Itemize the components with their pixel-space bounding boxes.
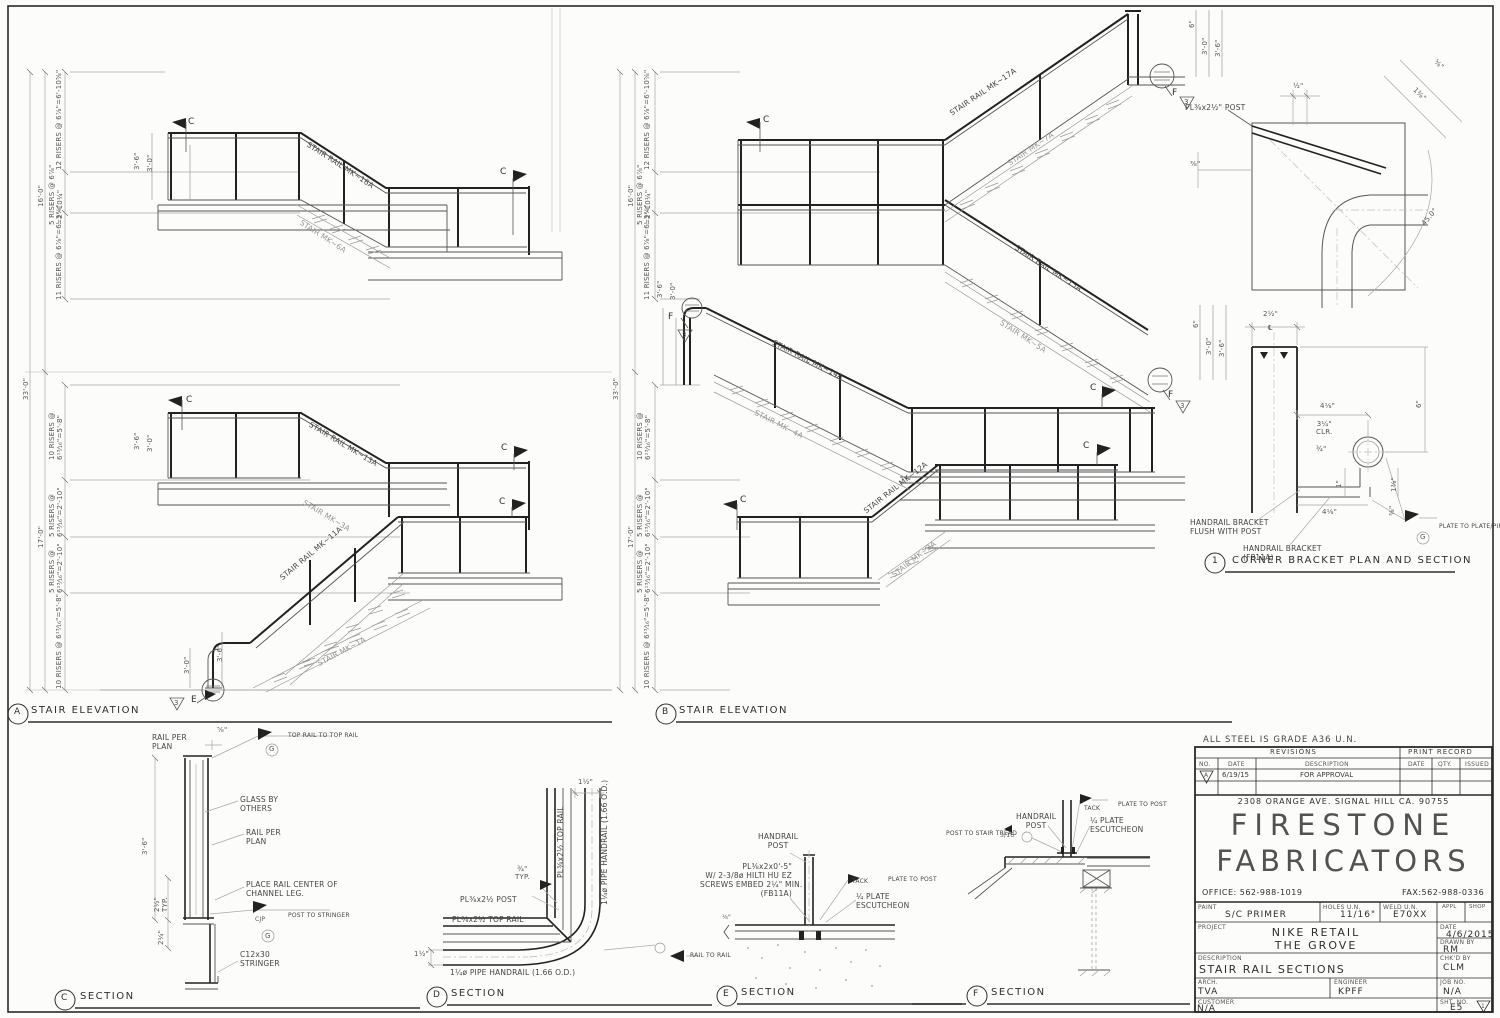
sec-e-post-label: HANDRAIL POST [758, 832, 798, 850]
elev-a-upper [152, 118, 562, 280]
elev-b-seg-l4: 10 RISERS @ 6¹³⁄₁₆"=5'-8" [643, 594, 651, 689]
sec-d-post-label: PL⅜x2½ POST [460, 895, 517, 904]
tb-address: 2308 ORANGE AVE. SIGNAL HILL CA. 90755 [1195, 797, 1492, 806]
sec-e-dim-18: ⅛" [722, 914, 731, 921]
tb-company-line1: FIRESTONE [1195, 808, 1492, 842]
elev-a-seg-u1: 12 RISERS @ 6⅞"=6'-10⅝" [55, 70, 63, 170]
detail1-dim-38b: ⅜" [1388, 506, 1396, 516]
sec-e-plate-to-post: PLATE TO POST [888, 876, 937, 883]
tb-shop-label: SHOP [1469, 904, 1485, 910]
sec-c-dim-36: 3'-6" [141, 837, 149, 855]
sec-c-weld-g2: G [265, 932, 271, 940]
sec-c-dim-214: 2¼" [157, 930, 165, 945]
tb-project-line1: NIKE RETAIL [1195, 926, 1437, 939]
steel-grade-note: ALL STEEL IS GRADE A36 U.N. [1203, 735, 1357, 745]
sec-e-plate-note: PL⅜x2x0'-5" W/ 2-3/8ø HILTI HU EZ SCREWS… [700, 862, 792, 898]
detail-corner-section [1245, 322, 1437, 545]
tb-arch-value: TVA [1198, 987, 1218, 997]
detail1-dim-6: 6" [1415, 400, 1423, 408]
elev-b-dim-30-mid: 3'-0" [1205, 337, 1213, 355]
elev-a-rail-height-lower: 3'-6" [133, 432, 141, 450]
elev-b-title: STAIR ELEVATION [679, 705, 788, 717]
sec-d-title: SECTION [451, 988, 506, 1000]
sec-c-weld-post: POST TO STRINGER [288, 912, 350, 919]
elev-a-end-rail-height: 3'-6" [216, 644, 224, 662]
sec-f-tack: TACK [1084, 805, 1100, 812]
tb-job-label: JOB NO. [1440, 979, 1466, 986]
tb-col-no: NO. [1199, 761, 1211, 768]
tb-paint-label: PAINT [1198, 904, 1217, 911]
tb-desc-value: STAIR RAIL SECTIONS [1199, 963, 1345, 976]
tb-chk-value: CLM [1443, 963, 1465, 973]
elev-a-flag-c3: C [186, 395, 192, 405]
elev-b-dim-30-top: 3'-0" [1201, 37, 1209, 55]
elev-b-flag-c2: C [1090, 383, 1096, 393]
elev-b-dim-upper: 16'-0" [627, 185, 635, 207]
elev-b-triangle-2: 3 [1180, 402, 1185, 410]
elev-b-dim-30-left: 3'-0" [669, 282, 677, 300]
sec-f-weld-316: 3/16 [1000, 832, 1014, 839]
tb-col-qty: QTY. [1438, 761, 1452, 768]
tb-rev-date: 6/19/15 [1222, 771, 1249, 779]
sec-e-rail-to-rail: RAIL TO RAIL [690, 952, 731, 959]
sec-c-title: SECTION [80, 991, 135, 1003]
sec-e-escutcheon: ¼ PLATE ESCUTCHEON [856, 892, 910, 910]
concrete-speckle [747, 944, 881, 989]
elev-b-flag-c3: C [1083, 441, 1089, 451]
elev-a-seg-l1: 10 RISERS @ 6¹³⁄₁₆"=5'-8" [48, 412, 65, 460]
tb-company-line2: FABRICATORS [1195, 844, 1492, 878]
elev-a-flag-c2: C [500, 167, 506, 177]
elev-b-seg-l3: 5 RISERS @ 6¹³⁄₁₆"=2'-10" [636, 543, 653, 593]
tb-fax: FAX:562-988-0336 [1402, 888, 1484, 897]
elev-b-flag-f1: F [1172, 88, 1177, 98]
tb-print-record-header: PRINT RECORD [1408, 748, 1473, 756]
elev-b-flag-c1: C [763, 115, 769, 125]
detail1-dim-418-top: 4⅛" [1320, 402, 1335, 410]
elev-b-upper [738, 10, 1252, 413]
tb-rev-mark: A [1204, 772, 1208, 779]
section-d [428, 788, 665, 968]
elev-a-dims [27, 69, 410, 693]
elev-a-flag-c1: C [188, 117, 194, 127]
elev-b-dim-36-left: 3'-6" [656, 280, 664, 298]
sec-f-escutcheon: ¼ PLATE ESCUTCHEON [1090, 816, 1144, 834]
elev-b-seg-l2: 5 RISERS @ 6¹³⁄₁₆"=2'-10" [636, 487, 653, 537]
elev-a-end-post-height: 3'-0" [183, 656, 191, 674]
floor-lines [25, 8, 612, 690]
tb-rev-desc: FOR APPROVAL [1300, 771, 1353, 779]
tb-project-line2: THE GROVE [1195, 939, 1437, 952]
detail1-dim-38: ⅜" [1190, 160, 1200, 168]
tb-sht-rev: 1 [1481, 1003, 1485, 1010]
sec-d-pipe-h: 1¼ø PIPE HANDRAIL (1.66 O.D.) [450, 968, 575, 977]
detail1-weld-g: G [1420, 533, 1426, 541]
elev-b-flag-f3: F [668, 312, 673, 322]
elev-a-marker: A [14, 707, 20, 717]
detail1-marker: 1 [1212, 556, 1218, 566]
elev-b-marker: B [662, 707, 668, 717]
elev-b-dim-6-mid: 6" [1192, 320, 1200, 328]
detail1-title: CORNER BRACKET PLAN AND SECTION [1232, 555, 1472, 567]
tb-drawn-value: RM [1443, 945, 1459, 955]
elev-b-dim-36-mid: 3'-6" [1218, 339, 1226, 357]
tb-col-issued: ISSUED [1465, 761, 1489, 768]
elev-a-dim-upper: 16'-0" [37, 185, 45, 207]
elev-a-seg-l4: 10 RISERS @ 6¹³⁄₁₆"=5'-8" [55, 594, 63, 689]
elev-b-dim-lower: 17'-0" [627, 526, 635, 548]
elev-b-lower [663, 298, 1185, 605]
elev-a-seg-l3: 5 RISERS @ 6¹³⁄₁₆"=2'-10" [48, 543, 65, 593]
elev-a-flag-c4: C [501, 443, 507, 453]
tb-engineer-value: KPFF [1338, 987, 1364, 997]
elev-a-post-height: 3'-0" [146, 154, 154, 172]
sec-d-top-rail-v: PL⅜x2½ TOP RAIL [556, 806, 565, 878]
tb-paint-value: S/C PRIMER [1225, 910, 1287, 920]
detail1-weld-plate: PLATE TO PLATE/PIPE [1439, 523, 1500, 530]
detail1-dim-34: ¾" [1316, 445, 1326, 453]
sec-f-plate-to-post: PLATE TO POST [1118, 801, 1167, 808]
sec-e-tack: TACK [852, 878, 868, 885]
sec-c-dim-212: 2½" TYP. [153, 897, 170, 912]
elev-a-flag-c5: C [499, 497, 505, 507]
elev-a-post-height-lower: 3'-0" [146, 434, 154, 452]
tb-col-date2: DATE [1408, 761, 1425, 768]
sec-e-title: SECTION [741, 987, 796, 999]
sec-f-title: SECTION [991, 987, 1046, 999]
tb-engineer-label: ENGINEER [1334, 979, 1367, 986]
detail1-dim-212: 2½" [1263, 310, 1278, 318]
drawing-sheet: ALL STEEL IS GRADE A36 U.N. 33'-0" 16'-0… [0, 0, 1500, 1018]
sec-d-top-rail-h: PL⅜x2½ TOP RAIL [452, 915, 524, 924]
tb-holes-value: 11/16" [1340, 910, 1376, 920]
sec-c-marker: C [61, 993, 67, 1003]
elev-a-detail-triangle: 3 [174, 699, 179, 707]
tb-office-phone: OFFICE: 562-988-1019 [1202, 888, 1302, 897]
elev-a-dim-overall: 33'-0" [22, 378, 30, 400]
detail1-dim-418-bot: 4⅛" [1322, 508, 1337, 516]
elev-b-dim-overall: 33'-0" [612, 378, 620, 400]
tb-job-value: N/A [1443, 987, 1462, 997]
elev-a-detail-flag-e: E [191, 695, 197, 705]
sec-d-dim-112-left: 1½" [414, 950, 429, 958]
sec-c-rail-mid: RAIL PER PLAN [246, 828, 281, 846]
tb-col-desc: DESCRIPTION [1305, 761, 1349, 768]
elev-b-dim-6-top: 6" [1188, 20, 1196, 28]
elev-b-seg-u1: 12 RISERS @ 6⅞"=6'-10⅝" [643, 70, 651, 170]
detail1-post-callout: PL⅜x2½" POST [1185, 103, 1245, 112]
detail1-centerline-symbol: ℄ [1268, 324, 1273, 332]
sec-c-weld-top: TOP RAIL TO TOP RAIL [288, 732, 358, 739]
sec-c-rail-top: RAIL PER PLAN [152, 733, 187, 751]
elev-b-flag-f2: F [1168, 390, 1173, 400]
sec-c-stringer-note: C12x30 STRINGER [240, 950, 280, 968]
tb-chk-label: CHK'D BY [1440, 955, 1471, 962]
detail1-dim-314-clr: 3¼" CLR. [1316, 420, 1332, 437]
detail1-dim-half: ½" [1293, 82, 1303, 90]
sec-c-cjp: CJP [255, 916, 265, 923]
elev-b-triangle-3: 3 [682, 331, 687, 339]
elev-a-dim-lower: 17'-0" [37, 526, 45, 548]
elev-a-rail-height: 3'-6" [133, 152, 141, 170]
sec-d-marker: D [433, 990, 440, 1000]
tb-desc-label: DESCRIPTION [1198, 955, 1242, 962]
sec-f-post-label: HANDRAIL POST [1016, 812, 1056, 830]
tb-appl-label: APPL [1442, 904, 1457, 910]
detail1-dim-1: 1" [1335, 480, 1343, 488]
elev-a-seg-u3: 11 RISERS @ 6⅞"=6'-3⅜" [55, 204, 63, 300]
elev-b-seg-l1: 10 RISERS @ 6¹³⁄₁₆"=5'-8" [636, 412, 653, 460]
sec-c-weld-g1: G [269, 745, 275, 753]
elev-b-flag-c4: C [740, 495, 746, 505]
detail1-dim-138b: 1⅜" [1390, 477, 1398, 492]
tb-revisions-header: REVISIONS [1270, 748, 1317, 756]
elev-a-seg-l2: 5 RISERS @ 6¹³⁄₁₆"=2'-10" [48, 487, 65, 537]
sec-d-pipe-v: 1¼ø PIPE HANDRAIL (1.66 O.D.) [600, 780, 609, 905]
elev-b-dim-36-top: 3'-6" [1214, 39, 1222, 57]
sec-c-dim-58: ⅝" [217, 726, 227, 734]
sec-c-glass-note: GLASS BY OTHERS [240, 795, 278, 813]
tb-sht-value: E5 [1450, 1003, 1463, 1013]
elev-a-title: STAIR ELEVATION [31, 705, 140, 717]
tb-customer-value: N/A [1197, 1004, 1216, 1014]
tb-arch-label: ARCH. [1198, 979, 1218, 986]
sec-e-marker: E [723, 989, 729, 999]
tb-weld-value: E70XX [1393, 910, 1427, 920]
tb-col-date: DATE [1228, 761, 1245, 768]
sec-d-dim-34: ¾" TYP. [515, 865, 530, 882]
sec-f-marker: F [973, 989, 978, 999]
sec-d-dim-112-top: 1½" [578, 778, 593, 786]
detail1-note-flush: HANDRAIL BRACKET FLUSH WITH POST [1190, 518, 1269, 536]
sec-c-place-rail: PLACE RAIL CENTER OF CHANNEL LEG. [246, 880, 338, 898]
elev-a-lower [100, 396, 612, 710]
elev-b-seg-u3: 11 RISERS @ 6⅞"=6'-3⅜" [643, 204, 651, 300]
